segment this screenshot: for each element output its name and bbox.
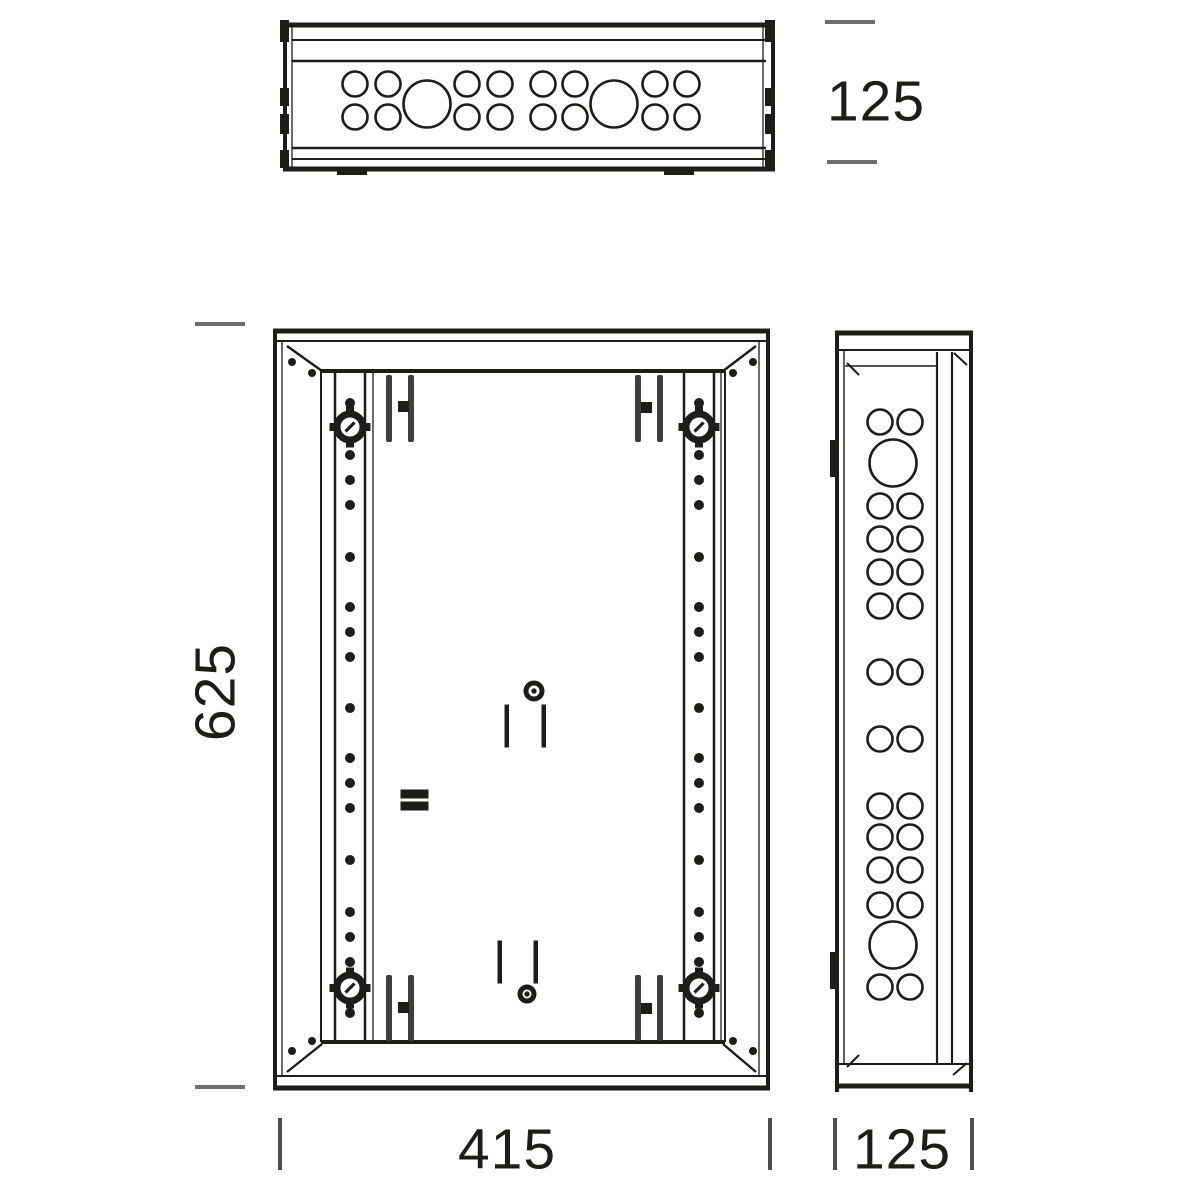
- din-bracket: [635, 975, 663, 1041]
- rail-hole: [346, 704, 355, 713]
- corner-rivet: [288, 358, 296, 366]
- knockout-hole: [898, 727, 923, 752]
- lock-tab: [347, 407, 354, 414]
- knockout-hole: [531, 72, 556, 97]
- rail-hole: [695, 628, 704, 637]
- lock-tab: [712, 985, 719, 992]
- knockout-hole: [343, 105, 368, 130]
- bracket-bar: [386, 975, 392, 1041]
- knockout-hole: [868, 594, 893, 619]
- rail-hole: [346, 553, 355, 562]
- equal-mark-bar: [401, 802, 428, 810]
- knockout-hole: [343, 72, 368, 97]
- rail-hole: [695, 553, 704, 562]
- dim-depth-bottom: 125: [833, 1118, 974, 1182]
- mounting-slot: [505, 705, 509, 747]
- rail-hole: [695, 754, 704, 763]
- rail-hole: [695, 603, 704, 612]
- knockout-hole: [868, 893, 893, 918]
- front-rail-marks: [330, 399, 719, 1018]
- rail-hole: [346, 804, 355, 813]
- bracket-bar: [635, 975, 641, 1041]
- rail-hole: [346, 856, 355, 865]
- knockout-hole: [643, 72, 668, 97]
- edge-block: [280, 150, 289, 168]
- dim-tick: [278, 1118, 282, 1170]
- knockout-hole: [376, 105, 401, 130]
- corner-rivet: [729, 1037, 737, 1045]
- lock-tab: [679, 985, 686, 992]
- mounting-slot: [534, 941, 538, 983]
- knockout-hole: [898, 410, 923, 435]
- knockout-hole-large: [870, 922, 917, 969]
- knockout-hole: [868, 527, 893, 552]
- dim-tick: [827, 160, 877, 164]
- lock-tab: [712, 424, 719, 431]
- front-center-marks: [401, 683, 546, 1001]
- rail-hole: [695, 933, 704, 942]
- corner-rivet: [729, 369, 737, 377]
- enclosure-drawing: 125 625 415 125: [0, 0, 1200, 1200]
- mount-tab: [337, 168, 367, 175]
- lock-tab: [330, 424, 337, 431]
- rail-hole: [695, 653, 704, 662]
- rail-hole: [346, 754, 355, 763]
- side-chamfer: [847, 363, 859, 375]
- rail-hole: [346, 603, 355, 612]
- dim-tick: [833, 1118, 837, 1170]
- knockout-hole: [868, 560, 893, 585]
- dim-tick: [768, 1118, 772, 1170]
- knockout-hole: [898, 825, 923, 850]
- knockout-hole: [675, 105, 700, 130]
- dim-label-width: 415: [458, 1118, 556, 1182]
- rail-hole: [346, 451, 355, 460]
- knockout-hole: [868, 825, 893, 850]
- lock-tab: [347, 440, 354, 447]
- knockout-hole: [488, 105, 513, 130]
- rail-hole: [695, 451, 704, 460]
- rail-hole: [695, 501, 704, 510]
- knockout-hole: [563, 72, 588, 97]
- knockout-hole: [898, 594, 923, 619]
- corner-rivet: [308, 1037, 316, 1045]
- lock-tab: [696, 968, 703, 975]
- knockout-hole: [898, 560, 923, 585]
- technical-drawing-page: 125 625 415 125: [0, 0, 1200, 1200]
- rail-hole: [346, 958, 355, 967]
- knockout-hole: [898, 794, 923, 819]
- dim-label-height: 625: [184, 643, 248, 741]
- knockout-hole: [898, 975, 923, 1000]
- knockout-hole: [868, 794, 893, 819]
- knockout-hole: [868, 975, 893, 1000]
- knockout-hole: [898, 893, 923, 918]
- knockout-hole: [488, 72, 513, 97]
- knockout-hole-large: [404, 81, 451, 128]
- knockout-hole: [531, 105, 556, 130]
- panel-screw: [526, 683, 542, 699]
- edge-block: [280, 20, 289, 42]
- top-view: [280, 20, 775, 175]
- edge-block: [765, 20, 775, 42]
- bracket-bar: [657, 975, 663, 1041]
- dim-tick: [195, 322, 245, 326]
- bracket-stud: [398, 401, 409, 412]
- knockout-hole: [455, 105, 480, 130]
- rail-hole: [346, 1009, 355, 1018]
- knockout-hole: [868, 410, 893, 435]
- dim-width: 415: [278, 1118, 772, 1182]
- edge-block: [280, 114, 289, 134]
- knockout-hole: [898, 660, 923, 685]
- edge-block: [765, 88, 775, 106]
- corner-rivet: [749, 358, 757, 366]
- knockout-hole: [455, 72, 480, 97]
- knockout-hole: [376, 72, 401, 97]
- wall-notch: [830, 952, 837, 989]
- corner-rivet: [308, 369, 316, 377]
- bracket-bar: [635, 375, 641, 442]
- knockout-hole: [868, 727, 893, 752]
- lock-tab: [363, 424, 370, 431]
- corner-rivet: [288, 1047, 296, 1055]
- rail-hole: [695, 476, 704, 485]
- dim-label-depth-bottom: 125: [853, 1118, 951, 1182]
- knockout-hole: [868, 660, 893, 685]
- lock-tab: [347, 968, 354, 975]
- corner-rivet: [749, 1047, 757, 1055]
- panel-screw: [520, 987, 534, 1001]
- front-view: [273, 329, 770, 1090]
- knockout-hole-large: [870, 440, 917, 487]
- rail-hole: [346, 476, 355, 485]
- edge-block: [280, 88, 289, 106]
- rail-hole: [695, 908, 704, 917]
- rail-hole: [346, 908, 355, 917]
- dim-height: 625: [184, 322, 248, 1089]
- knockout-hole: [898, 527, 923, 552]
- lock-tab: [347, 1001, 354, 1008]
- top-view-holes: [343, 72, 700, 130]
- rail-hole: [346, 501, 355, 510]
- lock-tab: [330, 985, 337, 992]
- rail-hole: [346, 653, 355, 662]
- lock-tab: [696, 440, 703, 447]
- din-bracket: [386, 375, 414, 442]
- lock-tab: [363, 985, 370, 992]
- rail-hole: [346, 933, 355, 942]
- knockout-hole-large: [591, 81, 638, 128]
- dim-depth-top: 125: [825, 20, 925, 164]
- lock-tab: [696, 407, 703, 414]
- rail-hole: [695, 399, 704, 408]
- edge-block: [765, 114, 775, 134]
- front-brackets: [386, 375, 663, 1041]
- knockout-hole: [643, 105, 668, 130]
- rail-hole: [695, 856, 704, 865]
- knockout-hole: [868, 858, 893, 883]
- dim-tick: [195, 1085, 245, 1089]
- mount-tab: [664, 168, 694, 175]
- rail-hole: [695, 704, 704, 713]
- rail-hole: [695, 804, 704, 813]
- front-corner-rivets: [288, 358, 757, 1055]
- mounting-slot: [542, 705, 546, 747]
- rail-hole: [695, 958, 704, 967]
- rail-hole: [695, 1009, 704, 1018]
- rail-hole: [695, 779, 704, 788]
- knockout-hole: [675, 72, 700, 97]
- rail-hole: [346, 399, 355, 408]
- knockout-hole: [868, 494, 893, 519]
- wall-notch: [830, 440, 837, 477]
- din-bracket: [635, 375, 663, 442]
- equal-mark-bar: [401, 790, 428, 798]
- rail-hole: [346, 628, 355, 637]
- rail-hole: [346, 779, 355, 788]
- dimensions: 125 625 415 125: [184, 20, 974, 1182]
- bracket-stud: [398, 1002, 409, 1013]
- bracket-stud: [641, 402, 652, 413]
- din-bracket: [386, 975, 414, 1041]
- bracket-bar: [386, 375, 392, 442]
- edge-block: [765, 150, 775, 168]
- knockout-hole: [563, 105, 588, 130]
- bracket-stud: [641, 1003, 652, 1014]
- dim-tick: [825, 20, 875, 24]
- lock-tab: [679, 424, 686, 431]
- knockout-hole: [898, 494, 923, 519]
- mounting-slot: [498, 941, 502, 983]
- knockout-hole: [898, 858, 923, 883]
- dim-label-depth-top: 125: [827, 70, 925, 134]
- bracket-bar: [657, 375, 663, 442]
- side-view: [830, 331, 973, 1092]
- lock-tab: [696, 1001, 703, 1008]
- side-view-holes: [868, 410, 923, 1000]
- dim-tick: [970, 1118, 974, 1170]
